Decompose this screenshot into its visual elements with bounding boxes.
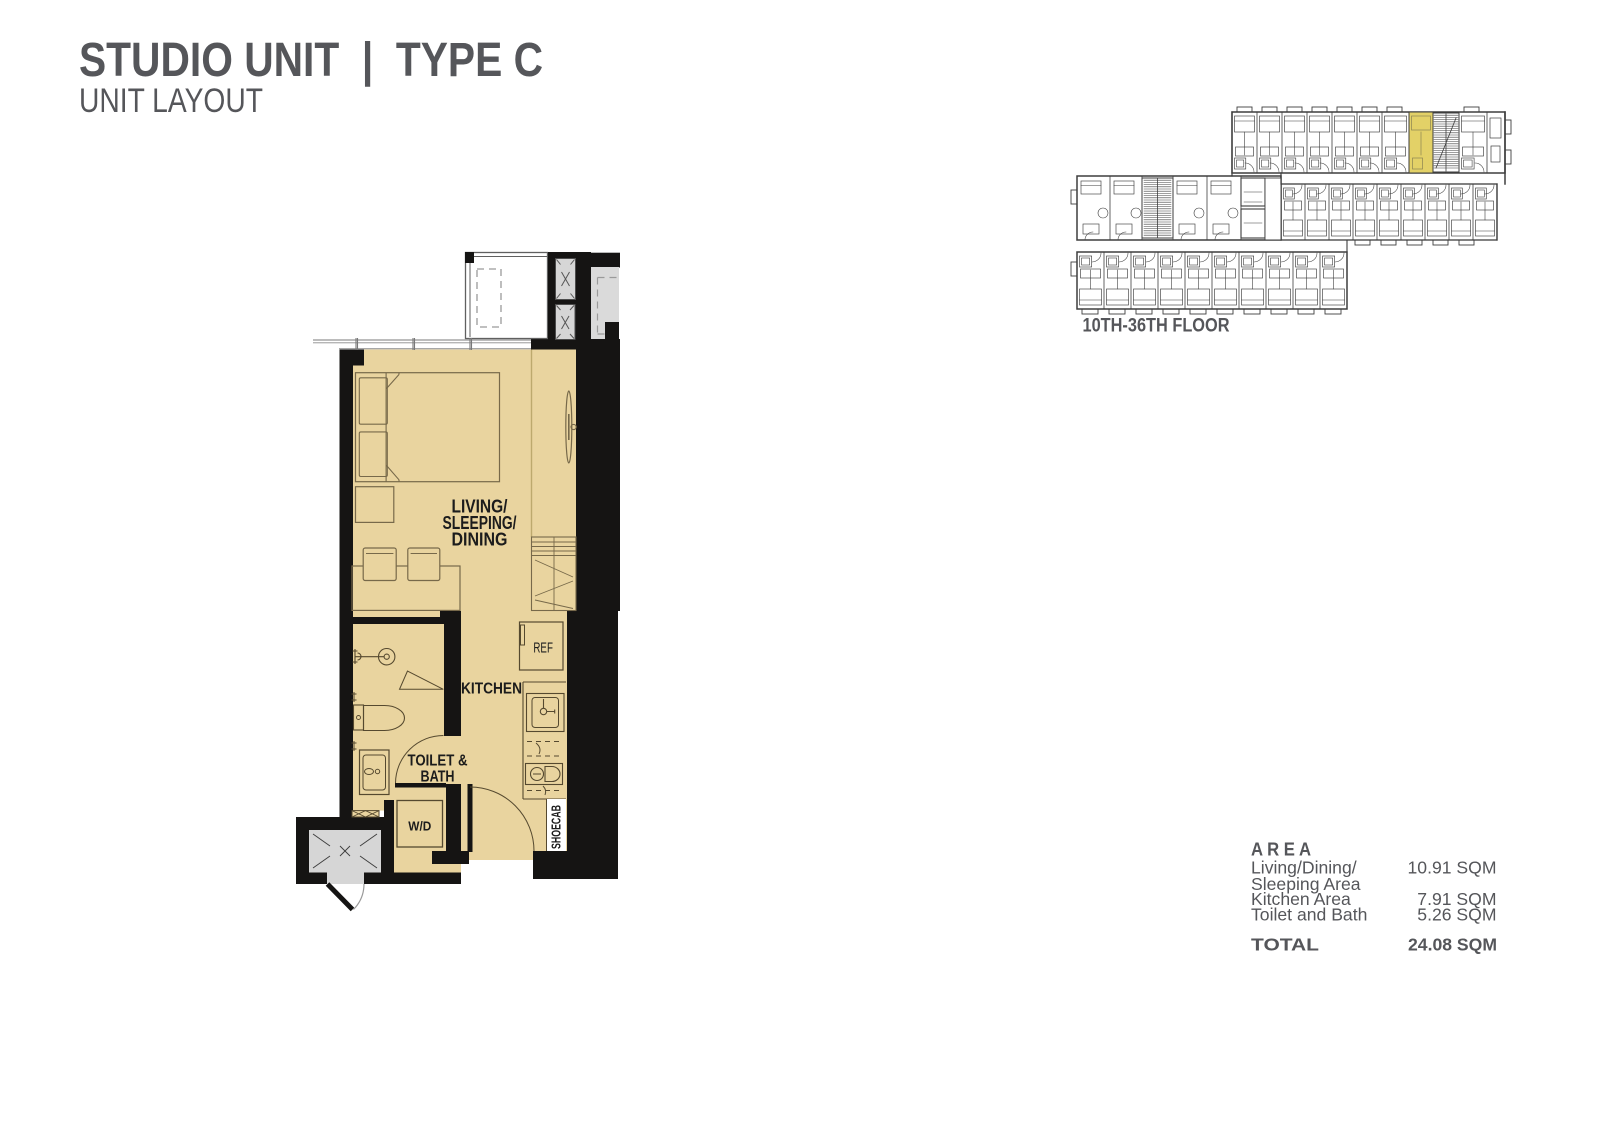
svg-text:24.08 SQM: 24.08 SQM (1408, 935, 1497, 955)
svg-text:W/D: W/D (408, 820, 431, 834)
svg-text:SHOECAB: SHOECAB (550, 805, 564, 849)
svg-text:BATH: BATH (421, 768, 455, 785)
svg-text:DINING: DINING (452, 529, 508, 549)
svg-text:UNIT LAYOUT: UNIT LAYOUT (79, 82, 263, 120)
svg-text:A R E A: A R E A (1251, 839, 1311, 859)
svg-text:STUDIO UNIT | TYPE C: STUDIO UNIT | TYPE C (79, 34, 543, 87)
svg-text:KITCHEN: KITCHEN (461, 680, 522, 697)
svg-text:10TH-36TH FLOOR: 10TH-36TH FLOOR (1083, 315, 1230, 337)
svg-text:Toilet and Bath: Toilet and Bath (1251, 905, 1367, 925)
svg-text:10.91 SQM: 10.91 SQM (1408, 858, 1497, 878)
svg-text:TOILET &: TOILET & (408, 753, 468, 770)
svg-text:5.26 SQM: 5.26 SQM (1417, 905, 1496, 925)
svg-text:TOTAL: TOTAL (1251, 935, 1319, 955)
svg-text:REF: REF (533, 640, 553, 657)
